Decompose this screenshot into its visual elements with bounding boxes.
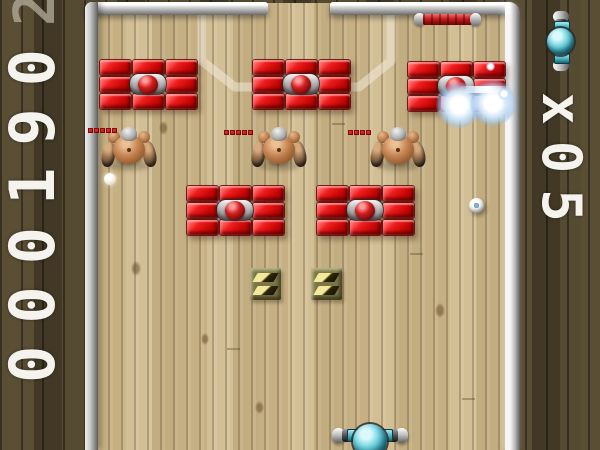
game-screen: 000190 2 x05 (0, 0, 600, 450)
score-display: 000190 (3, 0, 63, 415)
health-segment (100, 128, 105, 133)
robot-enemy (369, 127, 427, 173)
brick (133, 94, 164, 109)
brick-group (253, 60, 350, 110)
brick (317, 186, 348, 201)
score-dim-overflow-digit: 2 (6, 0, 66, 26)
chevron-bar (313, 273, 339, 282)
olive-chevron-tile (311, 268, 342, 300)
health-segment (348, 130, 353, 135)
brick (350, 186, 381, 201)
health-segment (236, 130, 241, 135)
brick (166, 60, 197, 75)
brick (220, 220, 251, 235)
brick (253, 220, 284, 235)
health-segment (88, 128, 93, 133)
brick (383, 220, 414, 235)
lives-display: x05 (531, 45, 591, 285)
ball (469, 198, 484, 213)
robot-body-dot (396, 148, 400, 152)
score-value: 000190 (0, 27, 69, 383)
brick (253, 60, 284, 75)
robot-enemy (100, 127, 158, 173)
robot-head (390, 127, 406, 141)
brick (319, 60, 350, 75)
spark-flash (486, 62, 495, 71)
health-segment (230, 130, 235, 135)
spark-flash (498, 88, 510, 100)
robot-health-bar (88, 128, 117, 133)
brick (319, 77, 350, 92)
robot-body-dot (127, 148, 131, 152)
ball (104, 173, 116, 185)
brick (187, 203, 218, 218)
brick (408, 62, 439, 77)
lives-value: x05 (530, 92, 593, 238)
brick (383, 203, 414, 218)
brick (408, 79, 439, 94)
brick (166, 77, 197, 92)
paddle-icon-orb (547, 28, 574, 55)
brick (220, 186, 251, 201)
brick (286, 60, 317, 75)
weapon-pickup-rod (414, 13, 481, 27)
robot-head (121, 127, 137, 141)
robot-head (271, 127, 287, 141)
health-segment (106, 128, 111, 133)
olive-chevron-tile (250, 268, 281, 300)
chevron-bar (252, 273, 278, 282)
brick (187, 186, 218, 201)
brick-group (317, 186, 414, 236)
brick (253, 186, 284, 201)
brick (166, 94, 197, 109)
brick (350, 220, 381, 235)
health-segment (354, 130, 359, 135)
brick (383, 186, 414, 201)
core-button-dome (225, 201, 245, 220)
rod-body (423, 14, 472, 25)
health-segment (248, 130, 253, 135)
core-button-dome (355, 201, 375, 220)
brick (253, 203, 284, 218)
robot-enemy (250, 127, 308, 173)
health-segment (360, 130, 365, 135)
health-segment (112, 128, 117, 133)
chevron-bar (252, 286, 278, 295)
paddle-icon (544, 11, 578, 71)
robot-body-dot (277, 148, 281, 152)
brick (408, 96, 439, 111)
core-button-dome (138, 75, 158, 94)
brick (133, 60, 164, 75)
brick (100, 94, 131, 109)
brick (286, 94, 317, 109)
core-button-dome (291, 75, 311, 94)
rod-cap-right (470, 13, 481, 26)
brick-group (100, 60, 197, 110)
health-segment (242, 130, 247, 135)
brick (319, 94, 350, 109)
brick (253, 94, 284, 109)
brick-group (187, 186, 284, 236)
brick (317, 220, 348, 235)
brick (253, 77, 284, 92)
brick (317, 203, 348, 218)
entities-layer (0, 0, 600, 450)
brick (441, 62, 472, 77)
health-segment (366, 130, 371, 135)
brick (100, 77, 131, 92)
player-paddle[interactable] (332, 421, 408, 450)
brick (100, 60, 131, 75)
robot-health-bar (224, 130, 253, 135)
robot-health-bar (348, 130, 371, 135)
health-segment (94, 128, 99, 133)
chevron-bar (313, 286, 339, 295)
brick (187, 220, 218, 235)
health-segment (224, 130, 229, 135)
paddle-orb (353, 424, 387, 450)
